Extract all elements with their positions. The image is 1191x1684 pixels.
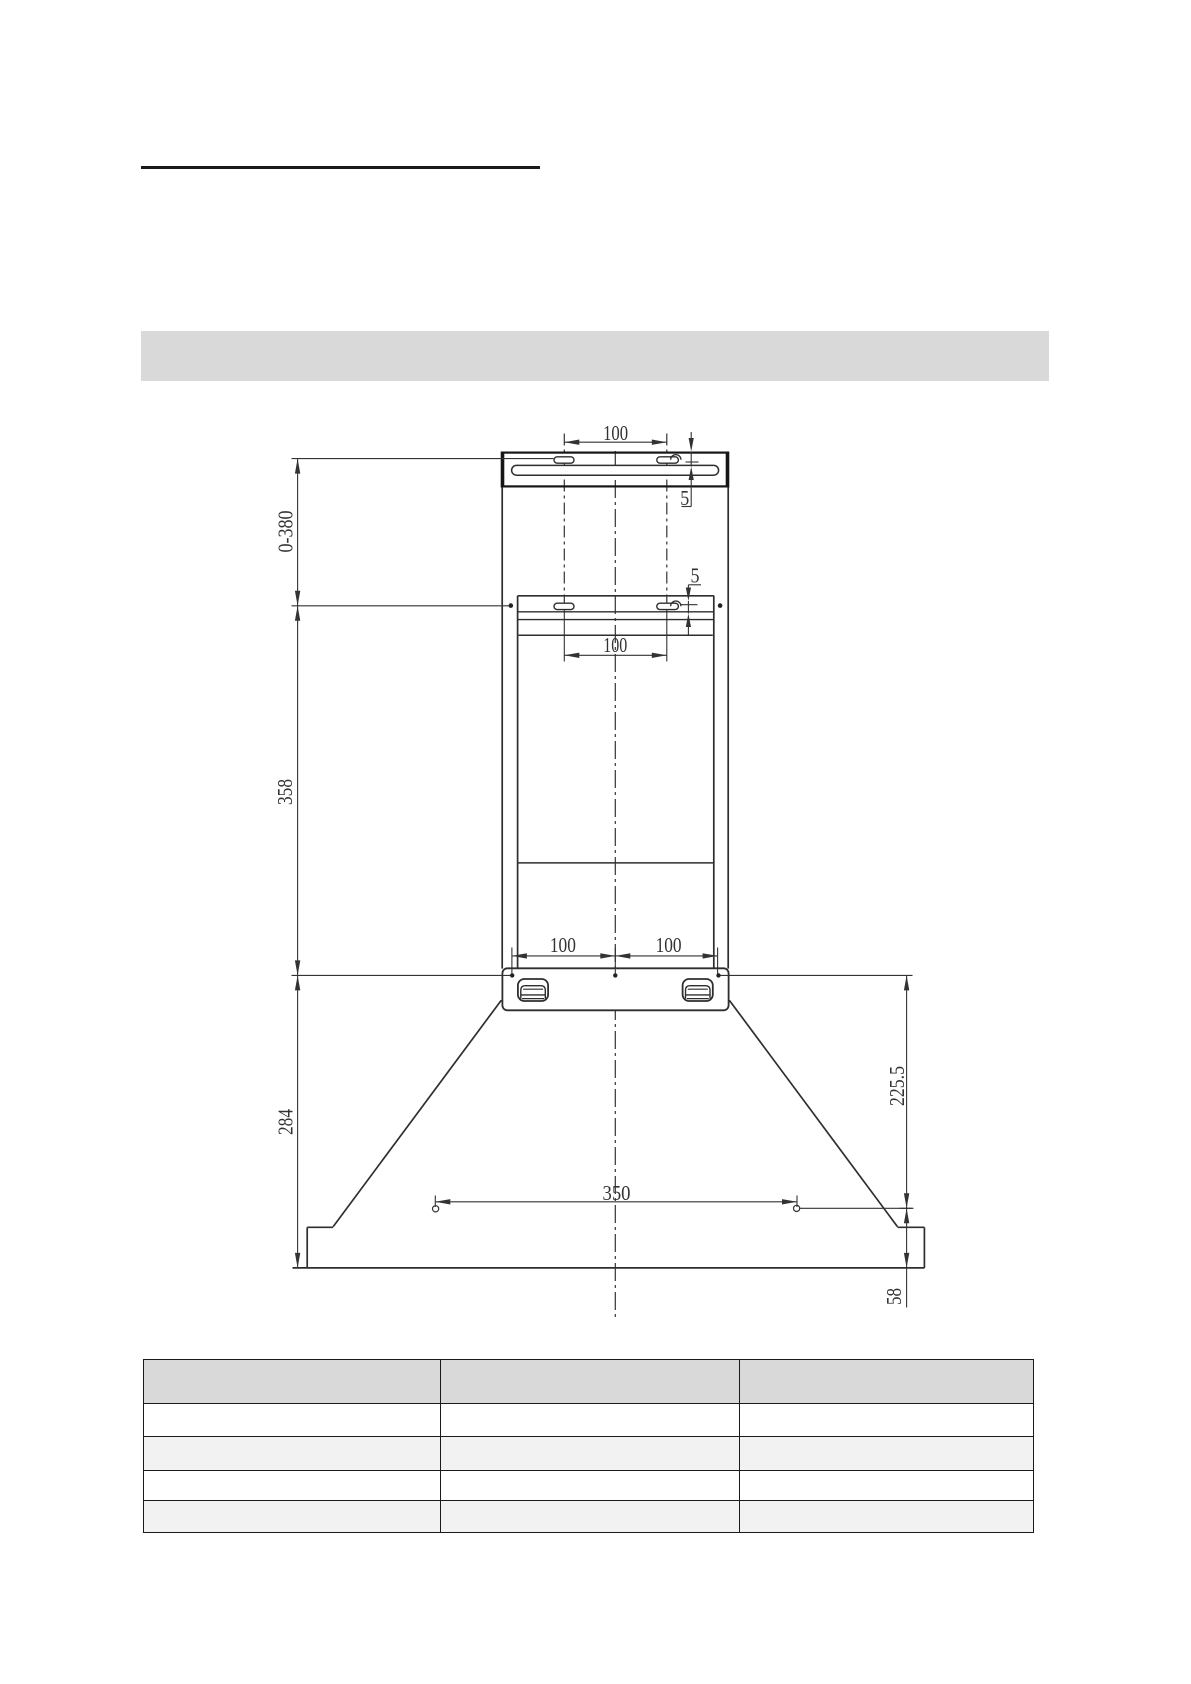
svg-text:100: 100	[656, 933, 682, 957]
svg-text:100: 100	[603, 633, 627, 657]
svg-text:358: 358	[273, 779, 297, 805]
svg-text:58: 58	[882, 1288, 906, 1305]
svg-text:5: 5	[680, 486, 689, 510]
svg-text:100: 100	[550, 933, 576, 957]
svg-text:100: 100	[603, 421, 628, 445]
svg-text:350: 350	[603, 1181, 631, 1205]
svg-text:5: 5	[691, 564, 700, 588]
svg-text:0-380: 0-380	[273, 511, 297, 553]
svg-text:225.5: 225.5	[885, 1066, 909, 1106]
svg-text:284: 284	[274, 1109, 298, 1135]
